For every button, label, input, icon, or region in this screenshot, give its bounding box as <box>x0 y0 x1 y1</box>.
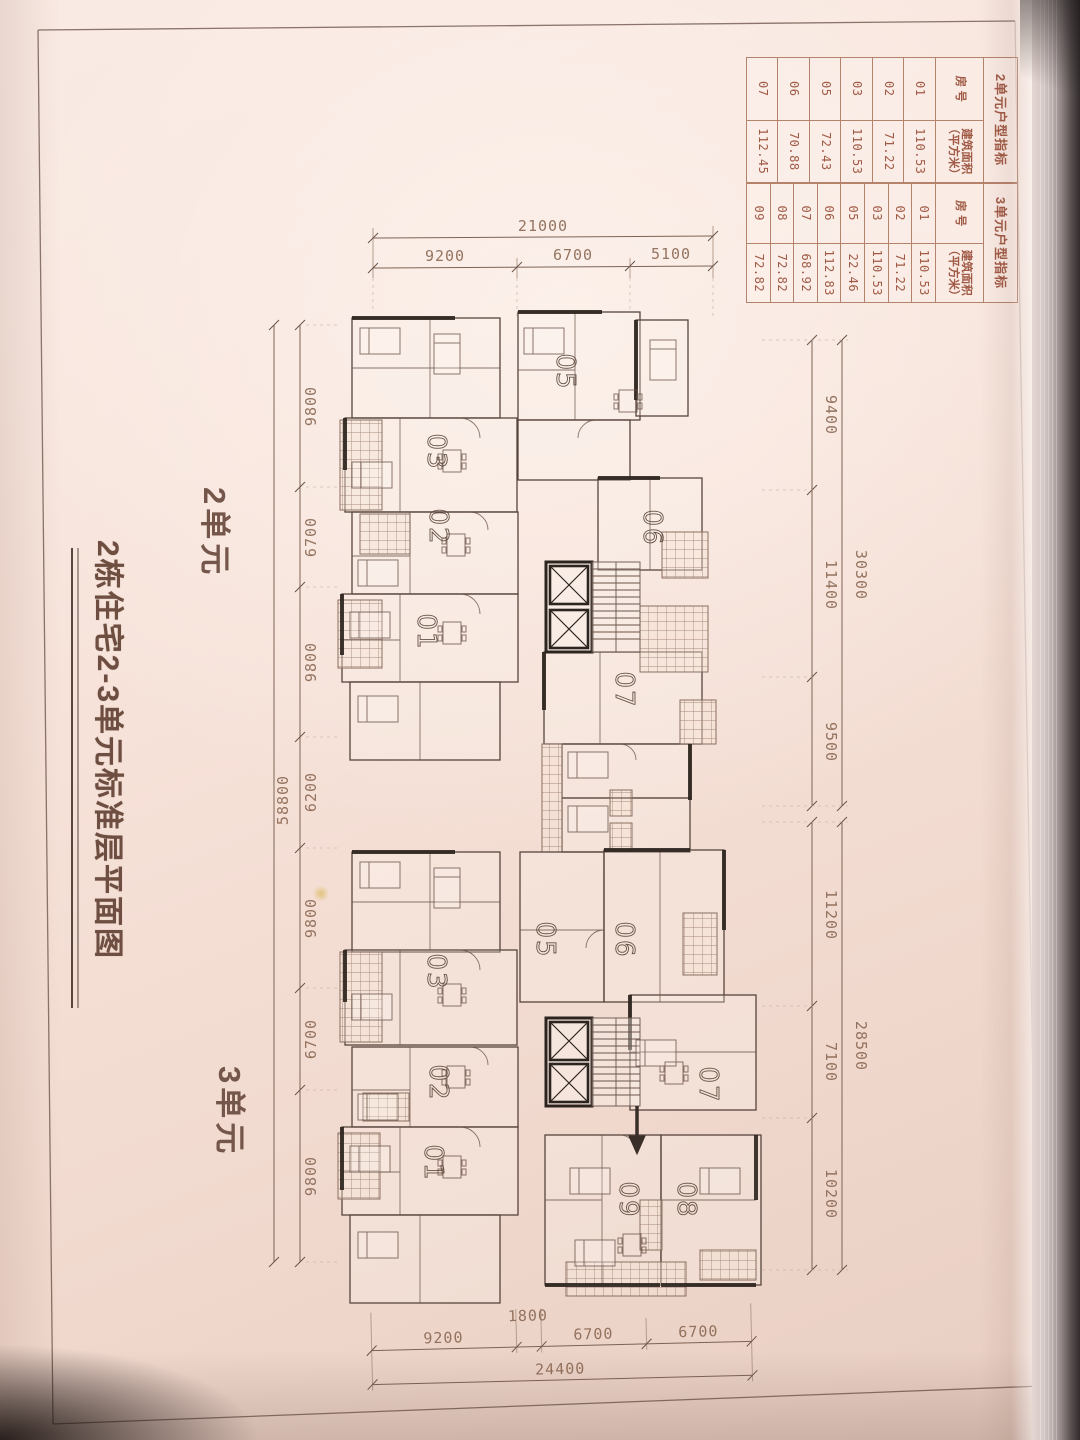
dim-label: 9800 <box>302 1156 320 1196</box>
table-row: 0572.43 <box>810 58 842 183</box>
dim-label: 11400 <box>822 560 840 610</box>
room-number: 02 <box>423 508 453 545</box>
room-number: 08 <box>671 1181 701 1218</box>
table-row: 01110.53 <box>912 184 936 303</box>
dim-label: 7100 <box>822 1042 840 1082</box>
room-number: 03 <box>421 953 451 990</box>
dim-label: 5100 <box>651 245 691 263</box>
room-col-header: 房 号 <box>936 58 984 121</box>
room-number: 06 <box>637 509 667 546</box>
room-number: 01 <box>411 613 441 650</box>
table-row: 06112.83 <box>817 184 841 303</box>
area-value-cell: 71.22 <box>888 243 912 303</box>
area-value-cell: 112.83 <box>817 243 841 303</box>
room-number: 03 <box>421 433 451 470</box>
drawing-title: 2栋住宅2-3单元标准层平面图 <box>89 540 133 1015</box>
dim-label: 30300 <box>852 550 870 600</box>
corner-shadow <box>0 1330 320 1440</box>
table-row: 03110.53 <box>841 58 873 183</box>
dim-label: 6700 <box>573 1325 614 1344</box>
dim-label: 9400 <box>822 395 840 435</box>
unit2-label: 2单元 <box>195 487 240 578</box>
table-row: 0522.46 <box>841 184 865 303</box>
room-number-cell: 07 <box>747 58 779 121</box>
room-number-cell: 05 <box>810 58 842 121</box>
room-number: 05 <box>530 921 560 958</box>
room-number-cell: 03 <box>841 58 873 121</box>
book-page-edge <box>1032 0 1080 1440</box>
dim-label: 6200 <box>302 772 320 812</box>
photographed-drawing-sheet: 21000 9200 6700 5100 9800 6700 9800 6200… <box>0 0 1080 1440</box>
room-col-header: 房 号 <box>936 184 984 244</box>
dim-label: 11200 <box>822 890 840 940</box>
room-number-cell: 06 <box>778 58 810 121</box>
table-row: 0271.22 <box>888 184 912 303</box>
dim-label: 6700 <box>302 517 320 557</box>
dim-label: 9500 <box>822 722 840 762</box>
area-value-cell: 110.53 <box>865 243 889 303</box>
dim-label: 6700 <box>678 1322 719 1341</box>
unit2-index-table: 2单元户型指标 房 号 建筑面积 （平方米） 01110.530271.2203… <box>746 57 1018 183</box>
room-number-cell: 06 <box>817 184 841 244</box>
page-edge-top-shadow <box>1020 0 1080 120</box>
dim-label: 9200 <box>425 247 465 265</box>
room-number-cell: 02 <box>873 58 905 121</box>
area-value-cell: 72.82 <box>747 243 771 303</box>
left-shading <box>0 0 60 1440</box>
table-row: 0271.22 <box>873 58 905 183</box>
table-row: 0768.92 <box>794 184 818 303</box>
dim-label: 9200 <box>423 1328 464 1347</box>
room-number-cell: 03 <box>865 184 889 244</box>
dim-chain-right: 9400 11400 9500 30300 11200 7100 10200 2… <box>762 335 870 1275</box>
room-number-cell: 01 <box>912 184 936 244</box>
area-value-cell: 71.22 <box>873 120 905 183</box>
room-number-cell: 01 <box>904 58 936 121</box>
room-number-cell: 05 <box>841 184 865 244</box>
table-row: 0670.88 <box>778 58 810 183</box>
unit3-index-table: 3单元户型指标 房 号 建筑面积 （平方米） 01110.530271.2203… <box>746 183 1018 303</box>
dim-chain-top: 21000 9200 6700 5100 <box>368 217 718 318</box>
room-number: 01 <box>418 1144 448 1181</box>
area-value-cell: 112.45 <box>747 120 779 183</box>
dim-label: 9800 <box>302 898 320 938</box>
area-value-cell: 110.53 <box>841 120 873 183</box>
room-number-cell: 08 <box>770 184 794 244</box>
room-number-cell: 02 <box>888 184 912 244</box>
room-number: 06 <box>609 921 639 958</box>
area-value-cell: 72.82 <box>770 243 794 303</box>
unit3-label: 3单元 <box>210 1066 255 1157</box>
area-value-cell: 110.53 <box>904 120 936 183</box>
title-underline <box>72 548 78 1008</box>
area-value-cell: 22.46 <box>841 243 865 303</box>
unit-index-tables: 2单元户型指标 房 号 建筑面积 （平方米） 01110.530271.2203… <box>746 57 1018 303</box>
dim-label: 6700 <box>302 1019 320 1059</box>
area-col-header: 建筑面积 （平方米） <box>936 243 984 303</box>
table-row: 03110.53 <box>865 184 889 303</box>
table-row: 01110.53 <box>904 58 936 183</box>
room-number: 07 <box>609 671 639 708</box>
dim-label: 10200 <box>822 1169 840 1219</box>
room-number: 09 <box>613 1181 643 1218</box>
unit3-plan: 03 05 06 02 07 01 09 08 <box>338 850 761 1303</box>
dim-label: 9800 <box>302 642 320 682</box>
dim-chain-left: 9800 6700 9800 6200 9800 6700 9800 58800 <box>269 320 338 1267</box>
area-value-cell: 68.92 <box>794 243 818 303</box>
table-row: 07112.45 <box>747 58 779 183</box>
page-curl-highlight <box>980 0 1036 1440</box>
room-number: 05 <box>550 353 580 390</box>
dim-label: 1800 <box>508 1306 549 1325</box>
dim-label: 21000 <box>518 217 568 235</box>
area-value-cell: 72.43 <box>810 120 842 183</box>
paper-stain <box>312 886 330 901</box>
room-number: 02 <box>423 1064 453 1101</box>
room-number-cell: 09 <box>747 184 771 244</box>
dim-label: 58800 <box>274 775 292 825</box>
room-number: 07 <box>693 1066 723 1103</box>
unit2-plan: 05 03 02 01 06 07 <box>338 312 716 852</box>
table-row: 0872.82 <box>770 184 794 303</box>
area-col-header: 建筑面积 （平方米） <box>936 120 984 183</box>
dim-label: 6700 <box>553 246 593 264</box>
area-value-cell: 110.53 <box>912 243 936 303</box>
area-value-cell: 70.88 <box>778 120 810 183</box>
dim-label: 28500 <box>852 1021 870 1071</box>
dim-label: 9800 <box>302 386 320 426</box>
table-row: 0972.82 <box>747 184 771 303</box>
room-number-cell: 07 <box>794 184 818 244</box>
